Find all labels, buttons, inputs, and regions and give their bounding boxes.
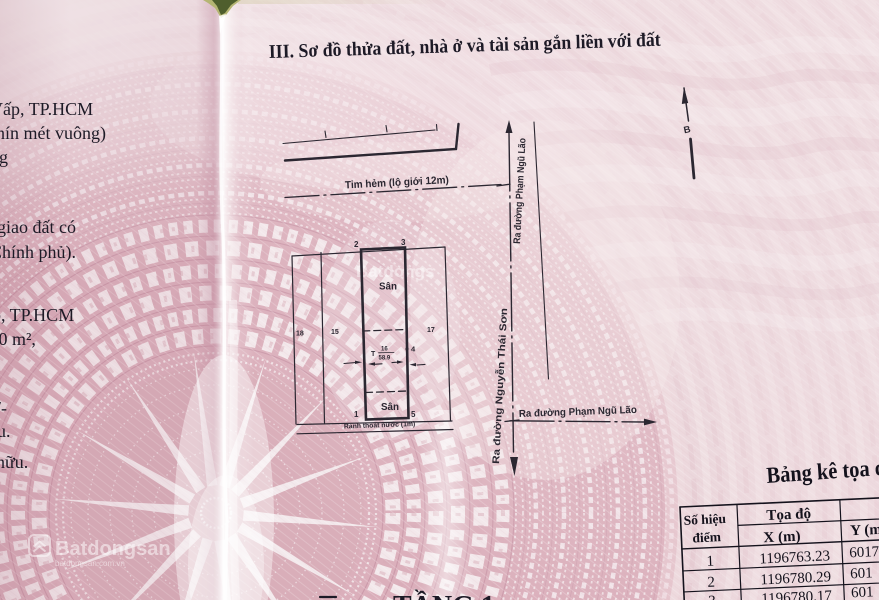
svg-text:18: 18	[296, 331, 304, 338]
svg-text:1: 1	[354, 410, 359, 419]
svg-text:Tọa độ: Tọa độ	[766, 506, 811, 524]
svg-text:X (m): X (m)	[763, 529, 801, 547]
svg-text:601: 601	[850, 565, 873, 582]
svg-text:6017: 6017	[849, 544, 879, 561]
svg-text:Số hiệu: Số hiệu	[683, 511, 727, 528]
svg-text:1196780.29: 1196780.29	[760, 569, 831, 588]
svg-text:điểm: điểm	[692, 529, 722, 545]
svg-text:17: 17	[427, 327, 435, 334]
svg-text:2: 2	[707, 575, 715, 591]
svg-text:TẦNG 1: TẦNG 1	[393, 590, 495, 600]
svg-text:3: 3	[708, 593, 716, 600]
svg-text:/-: /-	[0, 398, 7, 418]
svg-text:chín mét vuông): chín mét vuông)	[0, 123, 106, 144]
svg-text:hữu.: hữu.	[0, 452, 28, 472]
svg-text:ng: ng	[0, 147, 8, 167]
svg-text:Sân: Sân	[381, 402, 399, 413]
svg-text:5: 5	[411, 410, 416, 419]
svg-text:16: 16	[381, 347, 388, 353]
svg-text:58.9: 58.9	[379, 356, 391, 362]
svg-text:,0 m²,: ,0 m²,	[0, 329, 36, 349]
svg-text:Y (m: Y (m	[850, 522, 879, 539]
svg-text:1196763.23: 1196763.23	[759, 548, 830, 567]
svg-text:Batdongsan: Batdongsan	[55, 538, 171, 560]
svg-text:601: 601	[851, 584, 874, 600]
svg-text:Sân: Sân	[379, 282, 397, 293]
svg-text:batdongsan.com.vn: batdongsan.com.vn	[55, 559, 125, 568]
svg-text:1: 1	[706, 554, 714, 570]
svg-text:3: 3	[401, 238, 406, 247]
svg-text:2: 2	[354, 240, 359, 249]
svg-text:u.: u.	[0, 421, 11, 441]
svg-text:T: T	[371, 351, 376, 358]
svg-text:Batdongs: Batdongs	[356, 262, 434, 281]
svg-text:Chính phủ).: Chính phủ).	[0, 242, 76, 263]
svg-text:15: 15	[331, 329, 339, 336]
svg-text:1196780.17: 1196780.17	[761, 588, 833, 600]
svg-text:giao đất có: giao đất có	[0, 217, 76, 237]
svg-text:p, TP.HCM: p, TP.HCM	[0, 305, 74, 325]
svg-text:Vấp, TP.HCM: Vấp, TP.HCM	[0, 99, 93, 119]
